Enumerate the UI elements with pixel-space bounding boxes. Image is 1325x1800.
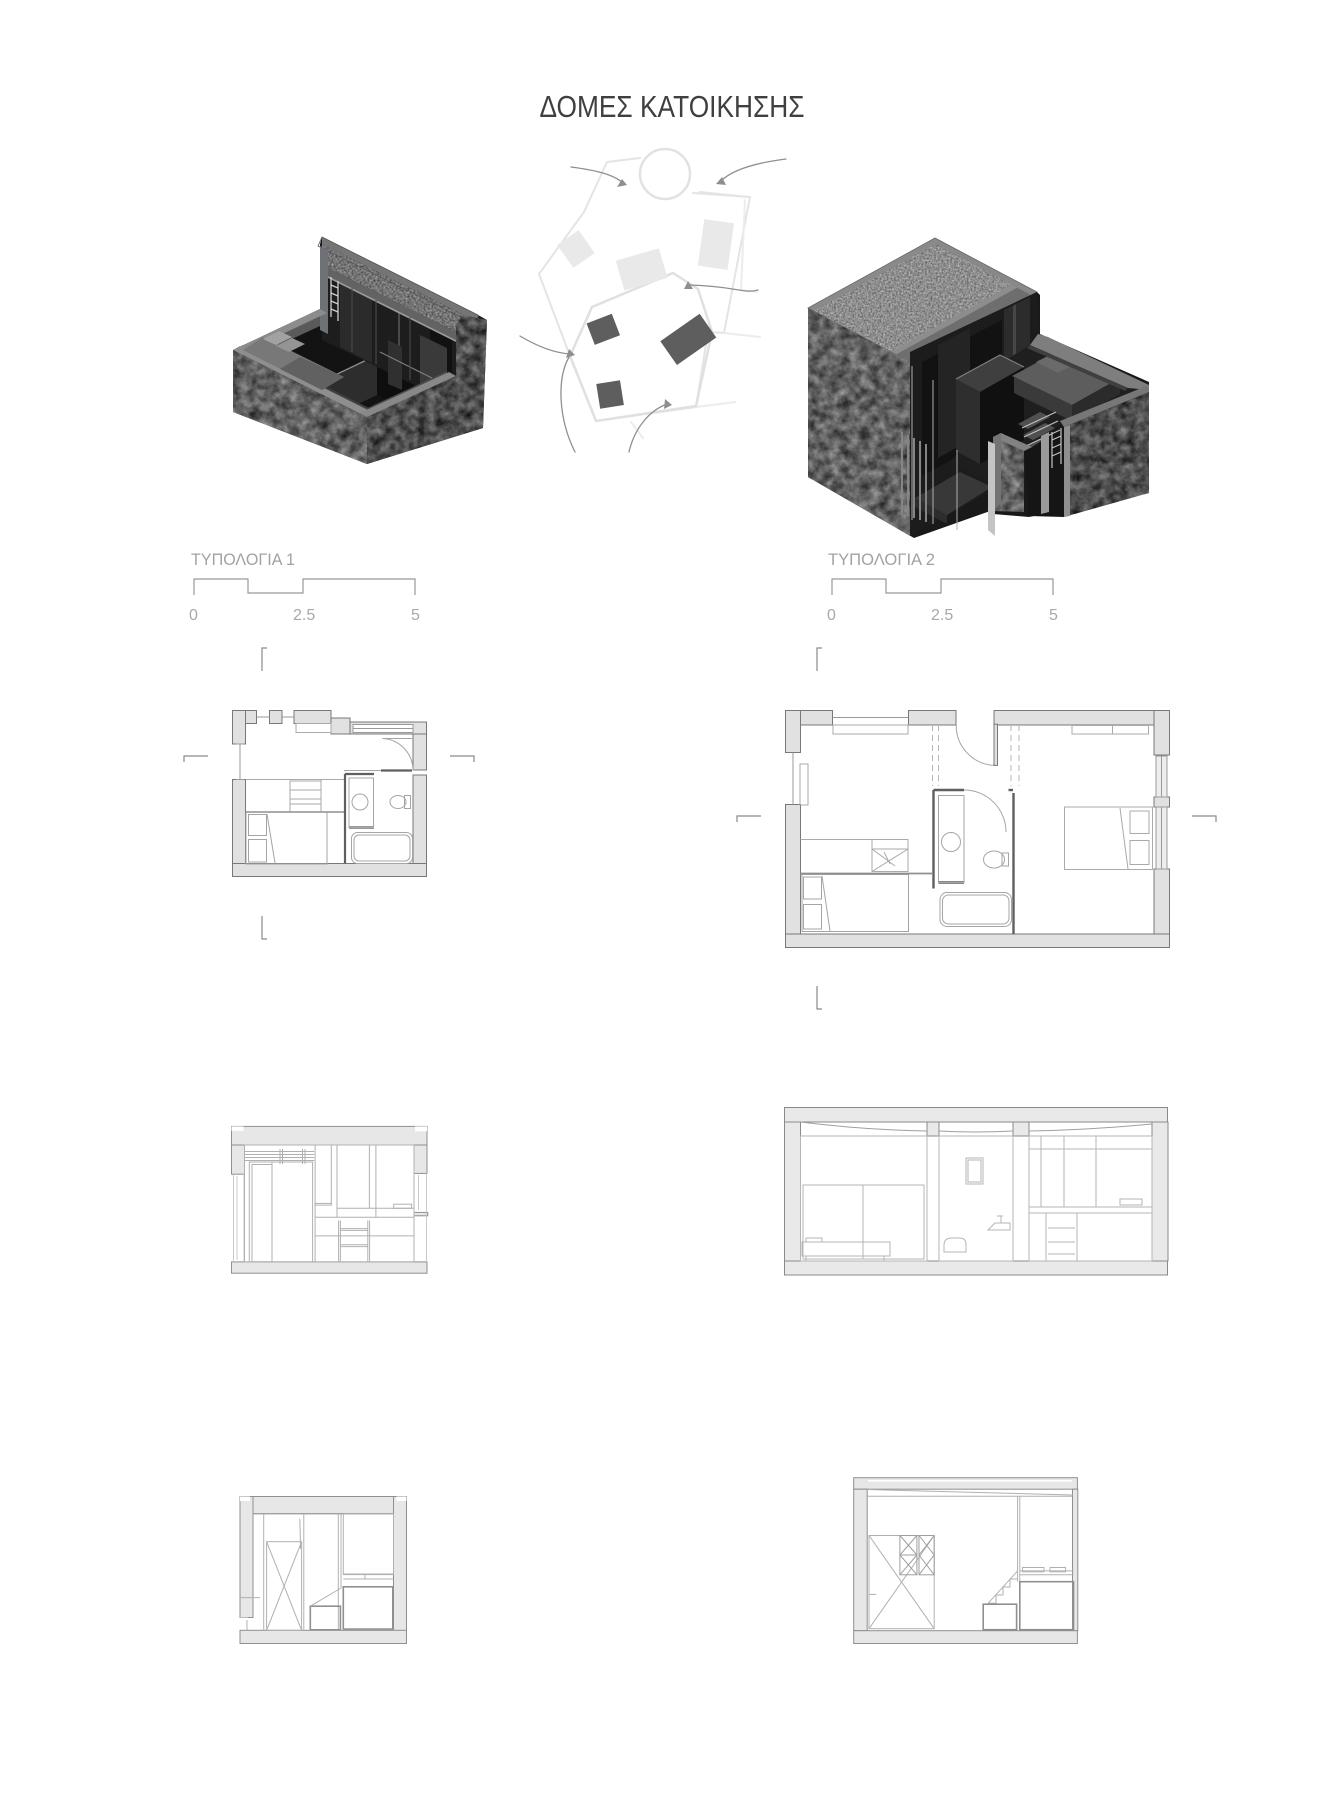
- svg-text:5: 5: [1049, 607, 1058, 624]
- svg-text:5: 5: [411, 607, 420, 624]
- svg-text:2.5: 2.5: [293, 607, 315, 624]
- svg-text:ΤΥΠΟΛΟΓΙΑ 1: ΤΥΠΟΛΟΓΙΑ 1: [191, 550, 295, 569]
- svg-text:0: 0: [827, 607, 836, 624]
- svg-text:0: 0: [189, 607, 198, 624]
- svg-text:ΔΟΜΕΣ ΚΑΤΟΙΚΗΣΗΣ: ΔΟΜΕΣ ΚΑΤΟΙΚΗΣΗΣ: [540, 89, 805, 124]
- svg-text:ΤΥΠΟΛΟΓΙΑ 2: ΤΥΠΟΛΟΓΙΑ 2: [828, 550, 935, 569]
- svg-text:2.5: 2.5: [931, 607, 953, 624]
